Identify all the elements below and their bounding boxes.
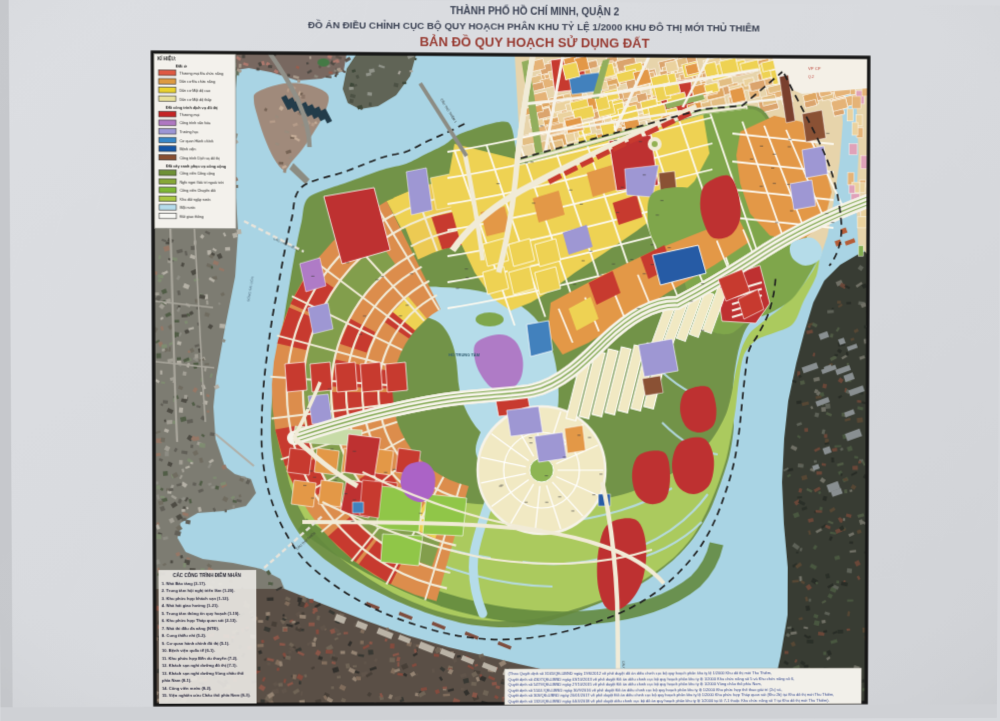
svg-text:Quyết định số 1320/QĐ-UBND ngà: Quyết định số 1320/QĐ-UBND ngày 04/4/201… — [508, 698, 829, 704]
svg-text:phía Nam (8-1).: phía Nam (8-1). — [162, 678, 191, 683]
svg-text:2. Trung tâm hội nghị triển lã: 2. Trung tâm hội nghị triển lãm (1-20). — [162, 589, 235, 594]
svg-text:Khu đất ngập nước: Khu đất ngập nước — [180, 198, 211, 202]
svg-text:7. Nhà thi đấu đa năng (NTĐ).: 7. Nhà thi đấu đa năng (NTĐ). — [162, 626, 219, 631]
svg-text:Thương mại Đa chức năng: Thương mại Đa chức năng — [179, 72, 223, 76]
svg-text:Công viên Chuyển đổi: Công viên Chuyển đổi — [180, 189, 216, 193]
svg-text:10. Bệnh viện quốc tế (6-1).: 10. Bệnh viện quốc tế (6-1). — [162, 648, 215, 653]
svg-text:Bệnh viện: Bệnh viện — [180, 148, 196, 152]
svg-text:9. Cơ quan hành chính đô thị (: 9. Cơ quan hành chính đô thị (5-1). — [162, 641, 230, 646]
svg-text:Nghỉ ngơi Giải trí ngoài trời: Nghỉ ngơi Giải trí ngoài trời — [180, 180, 224, 184]
svg-text:Dân cư Mật độ thấp: Dân cư Mật độ thấp — [179, 98, 211, 102]
svg-text:Đất ở: Đất ở — [176, 64, 188, 69]
svg-text:11. Khu phức hợp Bến du thuyền: 11. Khu phức hợp Bến du thuyền (7-2). — [162, 656, 238, 661]
svg-text:15. Viện nghiên cứu Châu thổ p: 15. Viện nghiên cứu Châu thổ phía Nam (8… — [162, 693, 251, 698]
svg-text:Mặt nước: Mặt nước — [180, 206, 196, 210]
svg-text:Công viên Công cộng: Công viên Công cộng — [180, 172, 215, 176]
svg-text:12. Khách sạn nghỉ dưỡng đô th: 12. Khách sạn nghỉ dưỡng đô thị (7-1). — [162, 663, 237, 668]
svg-text:3. Khu phức hợp khách sạn (1-1: 3. Khu phức hợp khách sạn (1-12). — [162, 596, 230, 601]
svg-text:CÁC CÔNG TRÌNH ĐIỂM NHẤN: CÁC CÔNG TRÌNH ĐIỂM NHẤN — [173, 572, 242, 579]
svg-text:8. Cung thiếu nhi (5-2).: 8. Cung thiếu nhi (5-2). — [162, 633, 206, 638]
svg-text:Đất công trình dịch vụ đô thị: Đất công trình dịch vụ đô thị — [166, 106, 218, 110]
svg-text:Đất giao thông: Đất giao thông — [180, 215, 204, 219]
svg-text:Công trình Dịch vụ đô thị: Công trình Dịch vụ đô thị — [180, 156, 220, 160]
svg-text:Trường học: Trường học — [180, 130, 199, 134]
svg-text:Thương mại: Thương mại — [180, 113, 200, 117]
svg-text:13. Khách sạn nghỉ dưỡng Vùng: 13. Khách sạn nghỉ dưỡng Vùng châu thổ — [162, 671, 244, 676]
svg-text:Cơ quan Hành chính: Cơ quan Hành chính — [180, 139, 214, 143]
svg-text:6. Khu phức hợp Tháp quan sát: 6. Khu phức hợp Tháp quan sát (2-13). — [162, 618, 237, 623]
svg-text:Dân cư Mật độ cao: Dân cư Mật độ cao — [179, 89, 210, 93]
svg-text:Đất cây xanh phục vụ công cộng: Đất cây xanh phục vụ công cộng — [166, 164, 227, 168]
svg-text:Dân cư Đa chức năng: Dân cư Đa chức năng — [179, 80, 215, 84]
svg-text:Công trình văn hóa: Công trình văn hóa — [180, 122, 212, 126]
svg-text:14. Công viên nước (8-2).: 14. Công viên nước (8-2). — [162, 686, 212, 691]
svg-text:BẢN ĐỒ QUY HOẠCH SỬ DỤNG ĐẤT: BẢN ĐỒ QUY HOẠCH SỬ DỤNG ĐẤT — [420, 35, 650, 52]
svg-text:1. Nhà Bảo tàng (3-17).: 1. Nhà Bảo tàng (3-17). — [162, 581, 206, 586]
svg-text:5. Trung tâm thông tin quy hoạ: 5. Trung tâm thông tin quy hoạch (1-19). — [162, 611, 240, 616]
svg-text:4. Nhà hát giao hưởng (1-21).: 4. Nhà hát giao hưởng (1-21). — [162, 603, 219, 608]
